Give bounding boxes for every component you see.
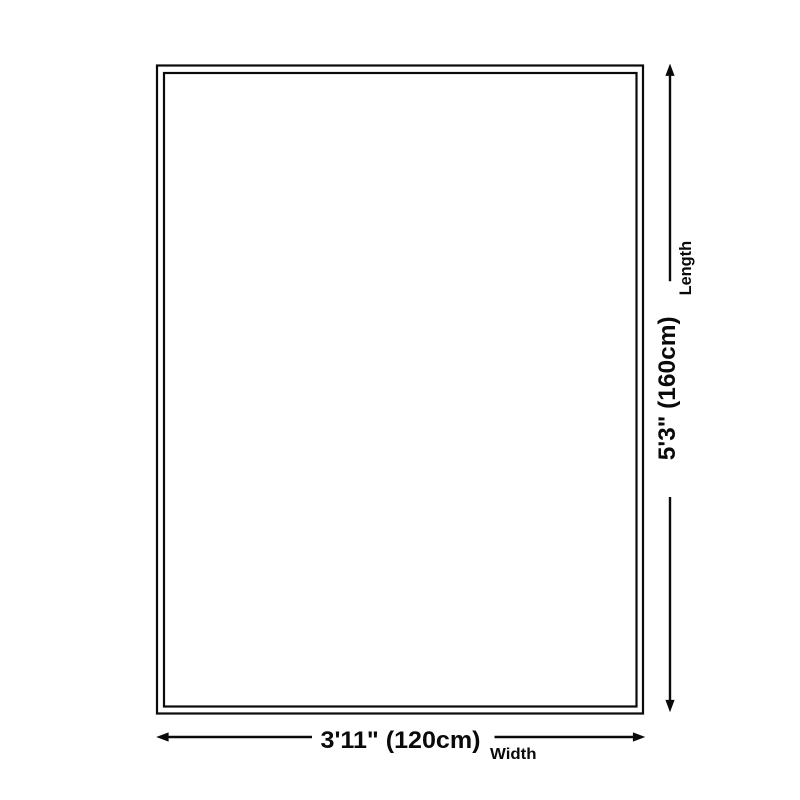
svg-text:Width: Width	[490, 746, 537, 763]
svg-text:5'3" (160cm): 5'3" (160cm)	[654, 316, 681, 460]
svg-text:Length: Length	[676, 241, 695, 296]
svg-text:3'11" (120cm): 3'11" (120cm)	[321, 727, 481, 754]
